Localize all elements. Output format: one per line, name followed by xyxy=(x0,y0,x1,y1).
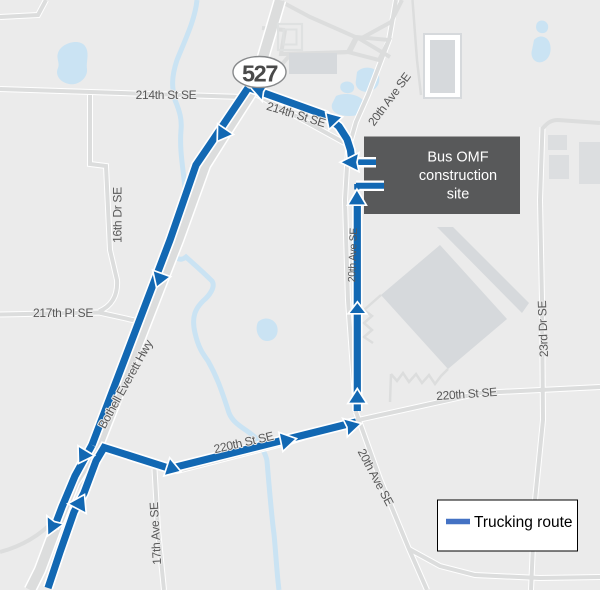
svg-text:construction: construction xyxy=(419,168,497,184)
svg-text:site: site xyxy=(447,187,470,203)
svg-text:217th Pl SE: 217th Pl SE xyxy=(33,306,93,320)
svg-text:214th St SE: 214th St SE xyxy=(136,88,197,102)
svg-text:16th Dr SE: 16th Dr SE xyxy=(111,187,125,243)
svg-text:527: 527 xyxy=(242,61,278,87)
svg-text:20th Ave SE: 20th Ave SE xyxy=(346,228,360,283)
svg-text:Trucking route: Trucking route xyxy=(474,514,573,531)
svg-text:Bus OMF: Bus OMF xyxy=(427,150,488,166)
svg-text:23rd Dr SE: 23rd Dr SE xyxy=(535,300,551,357)
